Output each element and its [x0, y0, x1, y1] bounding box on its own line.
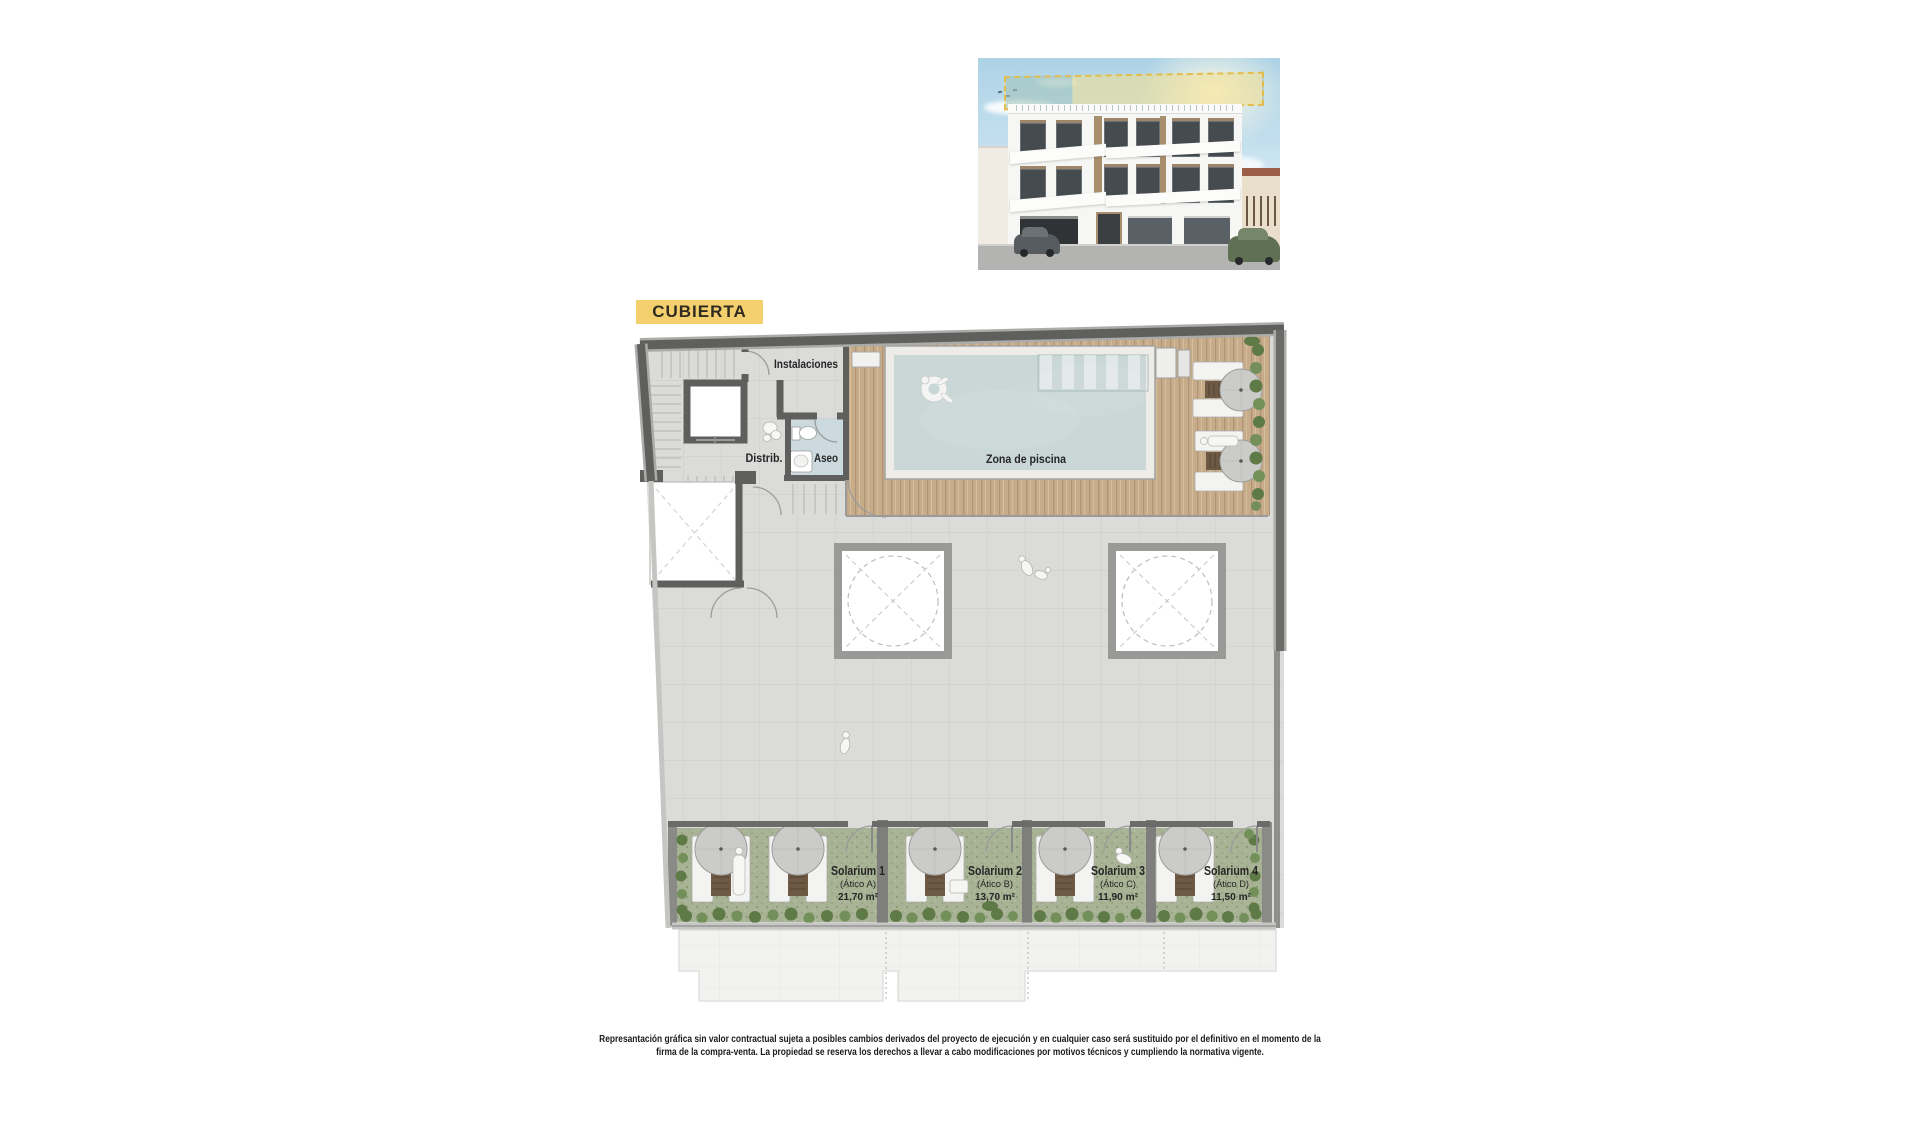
building-render — [978, 58, 1280, 270]
bird-icon — [998, 91, 1002, 93]
sun-lounger-set — [1036, 823, 1094, 902]
neighbor-trellis — [1246, 196, 1280, 226]
sink-icon — [790, 451, 812, 472]
toilet-icon — [792, 427, 817, 441]
neighbor-building-left — [978, 146, 1010, 258]
skylight — [838, 547, 948, 655]
disclaimer-line-2: firma de la compra-venta. La propiedad s… — [192, 1046, 1728, 1058]
parasol-icon — [909, 823, 961, 875]
svg-text:Solarium 2: Solarium 2 — [968, 864, 1022, 878]
roof-railing — [1016, 105, 1234, 111]
label-pool-zone: Zona de piscina — [986, 452, 1066, 466]
svg-text:Solarium 3: Solarium 3 — [1091, 864, 1145, 878]
svg-text:11,90 m²: 11,90 m² — [1098, 891, 1138, 903]
skylight — [1112, 547, 1222, 655]
divider-wall — [1146, 820, 1156, 926]
sun-lounger-set — [769, 823, 827, 902]
courtyard-void — [650, 482, 739, 584]
svg-text:(Ático C): (Ático C) — [1100, 879, 1136, 890]
svg-text:(Ático A): (Ático A) — [840, 879, 876, 890]
svg-text:Solarium 4: Solarium 4 — [1204, 864, 1258, 878]
deck-equipment — [852, 352, 880, 367]
wood-panel — [1160, 116, 1166, 204]
wood-panel — [1094, 116, 1102, 204]
sun-lounger-set — [692, 823, 750, 902]
car-green — [1228, 236, 1280, 262]
label-instalaciones: Instalaciones — [774, 359, 838, 371]
side-table — [950, 880, 968, 893]
svg-text:11,50 m²: 11,50 m² — [1211, 891, 1251, 903]
svg-text:(Ático D): (Ático D) — [1213, 879, 1249, 890]
parasol-icon — [1039, 823, 1091, 875]
floor-plan: Instalaciones Distrib. Aseo Zona de pisc… — [600, 315, 1320, 1010]
parasol-icon — [772, 823, 824, 875]
label-aseo: Aseo — [814, 453, 838, 465]
lower-roof-outline — [679, 930, 1276, 1001]
wall-stub — [735, 471, 756, 484]
divider-wall — [1022, 820, 1032, 926]
car-dark — [1014, 234, 1060, 254]
svg-text:21,70 m²: 21,70 m² — [838, 891, 878, 903]
svg-text:13,70 m²: 13,70 m² — [975, 891, 1015, 903]
pool-lockers — [1156, 348, 1190, 378]
elevator-shaft — [687, 383, 744, 444]
disclaimer-line-1: Represantación gráfica sin valor contrac… — [192, 1033, 1728, 1045]
svg-text:Solarium 1: Solarium 1 — [831, 864, 885, 878]
sun-lounger-set — [1156, 823, 1214, 902]
svg-text:(Ático B): (Ático B) — [977, 879, 1013, 890]
label-distrib: Distrib. — [746, 453, 783, 465]
disclaimer: Represantación gráfica sin valor contrac… — [0, 1032, 1920, 1059]
